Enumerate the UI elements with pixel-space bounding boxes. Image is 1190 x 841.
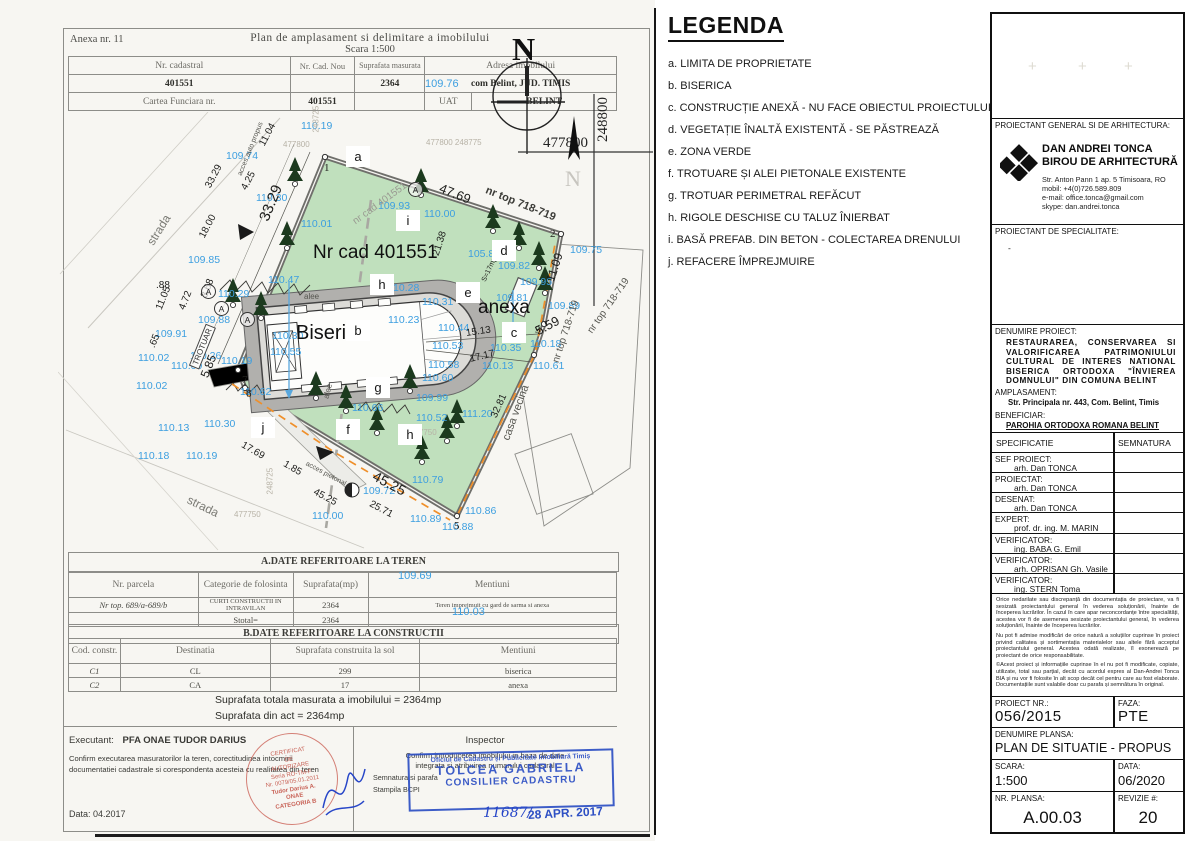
title-block: + + + PROIECTANT GENERAL SI DE ARHITECTU…: [990, 12, 1185, 834]
elevation-label: 110.19: [186, 450, 217, 462]
elevation-label: 110.52: [416, 412, 447, 424]
table-col-header: Nr. parcela: [69, 573, 199, 598]
dimension-label: 17.69: [239, 440, 266, 462]
elevation-label: 110.30: [204, 418, 235, 430]
elevation-label: 110.86: [465, 505, 496, 517]
legend-item: f. TROTUARE ȘI ALEI PIETONALE EXISTENTE: [668, 168, 991, 190]
spec-row: VERIFICATOR:ing. STERN Toma: [992, 574, 1183, 594]
firm-address-line: mobil: +4(0)726.589.809: [1042, 184, 1166, 193]
elevation-label: 110.55: [270, 346, 301, 358]
plan-text: nr top 718-719: [484, 184, 558, 223]
proiectant-general-section: PROIECTANT GENERAL SI DE ARHITECTURA: DA…: [992, 118, 1183, 224]
plan-text: Nr cad 401551: [313, 242, 438, 264]
teren-table: Nr. parcelaCategorie de folosintaSuprafa…: [68, 572, 617, 627]
cell-nr-cadastral: 401551: [69, 75, 291, 93]
table-cell: Teren imprejmuit cu gard de sarma si ane…: [368, 598, 616, 613]
legend-item: a. LIMITA DE PROPRIETATE: [668, 58, 991, 80]
elevation-label: 110.01: [301, 218, 332, 230]
dimension-label: 25.71: [367, 499, 394, 520]
table-cell: C2: [69, 678, 121, 692]
denumire-proiect-value: RESTAURAREA, CONSERVAREA SI VALORIFICARE…: [1006, 338, 1176, 386]
legend-item: g. TROTUAR PERIMETRAL REFĂCUT: [668, 190, 991, 212]
legend-key-marker: j: [251, 417, 275, 438]
table-cell: biserica: [420, 664, 617, 678]
data-value: 06/2020: [1118, 773, 1165, 788]
elevation-label: 110.66: [352, 402, 383, 414]
firm-address-line: e-mail: office.tonca@gmail.com: [1042, 193, 1166, 202]
table-col-header: Mentiuni: [420, 639, 617, 664]
point-number: 6: [246, 388, 252, 400]
table-col-header: Categorie de folosinta: [198, 573, 293, 598]
elevation-overlay: 109.69: [398, 570, 432, 582]
stamp-line: CATEGORIA B: [275, 798, 317, 812]
elevation-label: 110.02: [138, 352, 169, 364]
dimension-label: 15.13: [465, 325, 491, 339]
elevation-label: 110.00: [424, 208, 455, 220]
spec-name: arh. Dan TONCA: [1014, 503, 1077, 513]
table-cell: CURTI CONSTRUCTII IN INTRAVILAN: [198, 598, 293, 613]
plan-text: anexa: [478, 297, 530, 319]
spec-rows: SEF PROIECT:arh. Dan TONCAPROIECTAT:arh.…: [992, 452, 1183, 593]
elevation-label: 110.31: [422, 296, 453, 308]
semnatura-label: SEMNATURA: [1118, 438, 1171, 448]
spec-name: arh. Dan TONCA: [1014, 483, 1077, 493]
legend-key-marker: c: [502, 322, 526, 343]
beneficiar-value: PAROHIA ORTODOXA ROMANA BELINT: [1006, 421, 1159, 430]
section-a-title: A.DATE REFERITOARE LA TEREN: [68, 552, 619, 572]
dimension-label: .88: [156, 280, 170, 291]
point-number: 1: [324, 162, 330, 174]
table-row: Nr top. 689/a-689/bCURTI CONSTRUCTII IN …: [69, 598, 617, 613]
executant-inspector-box: Executant: PFA ONAE TUDOR DARIUS Confirm…: [63, 726, 617, 831]
elevation-label: 110.02: [136, 380, 167, 392]
legend-key-marker: g: [366, 377, 390, 398]
point-number: 3: [535, 324, 541, 336]
plan-text: acces pietonal: [304, 460, 347, 487]
table-col-header: Cod. constr.: [69, 639, 121, 664]
data-label: DATA:: [1118, 762, 1140, 771]
plan-text: acces auto propus: [237, 121, 265, 177]
dimension-label: 45.25: [311, 487, 338, 508]
proiectant-specialitate-value: -: [1008, 243, 1011, 253]
legend-item: d. VEGETAȚIE ÎNALTĂ EXISTENTĂ - SE PĂSTR…: [668, 124, 991, 146]
spec-row: SEF PROIECT:arh. Dan TONCA: [992, 453, 1183, 473]
firm-name-2: BIROU DE ARHITECTURĂ: [1042, 156, 1178, 169]
elevation-label: 110.47: [268, 274, 299, 286]
elevation-overlay: 109.76: [425, 78, 459, 90]
spec-name: ing. BABA G. Emil: [1014, 544, 1081, 554]
elevation-label: 110.60: [422, 372, 453, 384]
elevation-label: 109.88: [198, 314, 230, 326]
circled-a-marker: A: [240, 312, 255, 327]
elevation-label: 110.62: [240, 386, 271, 398]
legend-key-marker: f: [336, 419, 360, 440]
denumire-plansa-value: PLAN DE SITUATIE - PROPUS: [995, 741, 1171, 755]
plan-text: casa vecina: [500, 383, 531, 442]
elevation-label: 110.18: [138, 450, 169, 462]
dimension-label: 1.85: [281, 459, 303, 478]
elevation-label: 110.13: [158, 422, 189, 434]
total-line: Suprafata din act = 2364mp: [215, 708, 441, 724]
table-row: C1CL299biserica: [69, 664, 617, 678]
dimension-label: 18.00: [197, 213, 218, 240]
plan-text: alee: [322, 383, 334, 400]
total-line: Suprafata totala masurata a imobilului =…: [215, 692, 441, 708]
nr-plansa-label: NR. PLANSA:: [995, 794, 1045, 803]
proiect-nr-value: 056/2015: [995, 708, 1062, 725]
revizie-value: 20: [1113, 808, 1183, 828]
scara-label: SCARA:: [995, 762, 1025, 771]
elevation-label: 110.79: [412, 474, 443, 486]
proiect-nr-label: PROIECT NR.:: [995, 699, 1049, 708]
table-cell: 299: [270, 664, 420, 678]
legend-key-marker: i: [396, 210, 420, 231]
plan-text: 477750: [234, 510, 261, 519]
legend-key-marker: d: [492, 240, 516, 261]
spec-name: arh. Dan TONCA: [1014, 463, 1077, 473]
faza-value: PTE: [1118, 708, 1149, 725]
amplasament-value: Str. Principala nr. 443, Com. Belint, Ti…: [1008, 398, 1159, 407]
plan-text: 248725: [312, 106, 321, 133]
data-value: 04.2017: [93, 809, 126, 819]
plan-text: 248725: [266, 468, 275, 495]
denumire-proiect-label: DENUMIRE PROIECT:: [995, 327, 1077, 336]
table-col-header: Suprafata(mp): [293, 573, 368, 598]
cell-nr-cad-nou: [290, 75, 355, 93]
dimension-label: 33.29: [203, 163, 224, 190]
dimension-label: 11.09: [543, 251, 565, 283]
spec-row: VERIFICATOR:ing. BABA G. Emil: [992, 534, 1183, 554]
scara-data-section: SCARA: 1:500 DATA: 06/2020: [992, 759, 1183, 791]
point-number: 7: [242, 374, 248, 386]
signature: [318, 763, 370, 821]
denumire-plansa-label: DENUMIRE PLANSA:: [995, 730, 1074, 739]
point-number: 2: [550, 228, 556, 240]
firm-address: Str. Anton Pann 1 ap. 5 Timisoara, ROmob…: [1042, 175, 1166, 211]
scan-edge: [95, 834, 650, 837]
table-cell: CL: [120, 664, 270, 678]
elevation-label: 110.89: [410, 513, 441, 525]
legend-item: h. RIGOLE DESCHISE CU TALUZ ÎNIERBAT: [668, 212, 991, 234]
legend-list: a. LIMITA DE PROPRIETATEb. BISERICAc. CO…: [668, 58, 991, 278]
plan-text: 477800: [283, 140, 310, 149]
legend-item: i. BASĂ PREFAB. DIN BETON - COLECTAREA D…: [668, 234, 991, 256]
circled-a-marker: A: [214, 301, 229, 316]
elevation-label: 109.82: [498, 260, 530, 272]
point-number: 5: [454, 520, 460, 532]
dimension-label: 47.69: [437, 181, 473, 207]
spec-header: SPECIFICATIE SEMNATURA: [992, 432, 1183, 452]
fine-print-paragraph: ©Acest proiect și informațiile cuprinse …: [996, 662, 1179, 688]
specificatie-label: SPECIFICATIE: [996, 438, 1053, 448]
spec-row: EXPERT:prof. dr. ing. M. MARIN: [992, 513, 1183, 533]
fine-print-paragraph: Nu pot fi admise modificări de orice nat…: [996, 633, 1179, 659]
plan-text: nr top 718-719: [585, 276, 631, 336]
elevation-label: 110.29: [218, 288, 249, 300]
spec-row: PROIECTAT:arh. Dan TONCA: [992, 473, 1183, 493]
table-cell: anexa: [420, 678, 617, 692]
firm-name-1: DAN ANDREI TONCA: [1042, 143, 1178, 156]
dimension-label: 32.81: [489, 392, 509, 419]
elevation-overlay: 110.03: [452, 606, 485, 618]
legend-title: LEGENDA: [668, 12, 784, 42]
legend-key-marker: b: [346, 320, 370, 341]
table-col-header: Suprafata construita la sol: [270, 639, 420, 664]
plan-text: strada: [144, 212, 174, 248]
revision-box: + + +: [992, 14, 1183, 118]
revizie-label: REVIZIE #:: [1118, 794, 1158, 803]
project-info-section: DENUMIRE PROIECT: RESTAURAREA, CONSERVAR…: [992, 324, 1183, 432]
elevation-label: 110.13: [482, 360, 513, 372]
elevation-label: 110.35: [490, 342, 521, 354]
table-cell: Nr top. 689/a-689/b: [69, 598, 199, 613]
executant-label: Executant:: [69, 735, 114, 746]
anexa-note: Anexa nr. 11: [70, 34, 124, 45]
plan-text: alee: [304, 292, 319, 301]
firm-address-line: skype: dan.andrei.tonca: [1042, 202, 1166, 211]
elevation-label: 109.85: [188, 254, 220, 266]
elevation-label: 110.53: [432, 340, 463, 352]
registration-number: 11687/: [483, 805, 532, 821]
col-nr-cad-nou: Nr. Cad. Nou: [290, 57, 355, 75]
fine-print-paragraph: Orice nedarilate sau discrepanță din doc…: [996, 597, 1179, 630]
legend-key-marker: a: [346, 146, 370, 167]
proiectant-general-label: PROIECTANT GENERAL SI DE ARHITECTURA:: [995, 121, 1170, 130]
data-label: Data:: [69, 809, 91, 819]
spec-name: prof. dr. ing. M. MARIN: [1014, 523, 1098, 533]
table-row: C2CA17anexa: [69, 678, 617, 692]
scara-value: 1:500: [995, 773, 1028, 788]
totals: Suprafata totala masurata a imobilului =…: [215, 692, 441, 724]
proiectant-specialitate-section: PROIECTANT DE SPECIALITATE: -: [992, 224, 1183, 324]
firm-logo-icon: [1000, 143, 1038, 181]
circled-a-marker: A: [408, 182, 423, 197]
legend-panel: LEGENDA a. LIMITA DE PROPRIETATEb. BISER…: [660, 0, 988, 841]
elevation-label: 111.20: [462, 408, 493, 420]
faza-label: FAZA:: [1118, 699, 1140, 708]
elevation-label: 110.00: [312, 510, 343, 522]
elevation-label: 109.75: [570, 244, 602, 256]
circled-a-marker: A: [201, 284, 216, 299]
nr-plansa-value: A.00.03: [992, 808, 1113, 828]
legend-key-marker: h: [398, 424, 422, 445]
col-nr-cadastral: Nr. cadastral: [69, 57, 291, 75]
denumire-plansa-section: DENUMIRE PLANSA: PLAN DE SITUATIE - PROP…: [992, 727, 1183, 759]
elevation-label: 110.23: [388, 314, 419, 326]
legend-key-marker: h: [370, 274, 394, 295]
table-cell: C1: [69, 664, 121, 678]
elevation-label: 110.58: [428, 359, 459, 371]
spec-row: DESENAT:arh. Dan TONCA: [992, 493, 1183, 513]
beneficiar-label: BENEFICIAR:: [995, 411, 1045, 420]
spec-name: arh. OPRISAN Gh. Vasile: [1014, 564, 1108, 574]
table-cell: 2364: [293, 598, 368, 613]
table-col-header: Destinatia: [120, 639, 270, 664]
legend-item: c. CONSTRUCȚIE ANEXĂ - NU FACE OBIECTUL …: [668, 102, 991, 124]
dimension-label: .65: [147, 333, 162, 350]
constructii-table: Cod. constr.DestinatiaSuprafata construi…: [68, 638, 617, 692]
dimension-label: 4.72: [177, 289, 194, 311]
date-stamp: 28 APR. 2017: [528, 804, 604, 822]
legend-item: e. ZONA VERDE: [668, 146, 991, 168]
table-cell: CA: [120, 678, 270, 692]
cell-suprafata: 2364: [355, 75, 425, 93]
plan-text: strada: [185, 493, 221, 520]
col-suprafata: Suprafata masurata: [355, 57, 425, 75]
proiectant-specialitate-label: PROIECTANT DE SPECIALITATE:: [995, 227, 1119, 236]
spec-row: VERIFICATOR:arh. OPRISAN Gh. Vasile: [992, 554, 1183, 574]
plan-labels: 110.19109.74110.30109.93110.00110.01109.…: [58, 112, 652, 552]
table-cell: 17: [270, 678, 420, 692]
plan-text: 477800 248775: [426, 138, 482, 147]
cell-cartea-funciara-value: 401551: [290, 93, 355, 111]
proiect-nr-section: PROIECT NR.: 056/2015 FAZA: PTE: [992, 696, 1183, 727]
firm-address-line: Str. Anton Pann 1 ap. 5 Timisoara, RO: [1042, 175, 1166, 184]
cell-cartea-funciara-label: Cartea Funciara nr.: [69, 93, 291, 111]
inspector-label: Inspector: [353, 735, 617, 746]
site-plan: 110.19109.74110.30109.93110.00110.01109.…: [58, 112, 652, 552]
cadastral-sheet: Anexa nr. 11 Plan de amplasament si deli…: [0, 0, 655, 841]
amplasament-label: AMPLASAMENT:: [995, 388, 1057, 397]
nr-plansa-section: NR. PLANSA: A.00.03 REVIZIE #: 20: [992, 791, 1183, 832]
elevation-label: 110.19: [221, 355, 252, 367]
fine-print: Orice nedarilate sau discrepanță din doc…: [992, 593, 1183, 696]
legend-key-marker: e: [456, 282, 480, 303]
elevation-label: 109.99: [416, 392, 448, 404]
legend-item: b. BISERICA: [668, 80, 991, 102]
inspector-blue-stamp: Oficiul de Cadastru și Publicitate Imobi…: [407, 748, 614, 811]
executant-name: PFA ONAE TUDOR DARIUS: [123, 735, 247, 746]
legend-item: j. REFACERE ÎMPREJMUIRE: [668, 256, 991, 278]
